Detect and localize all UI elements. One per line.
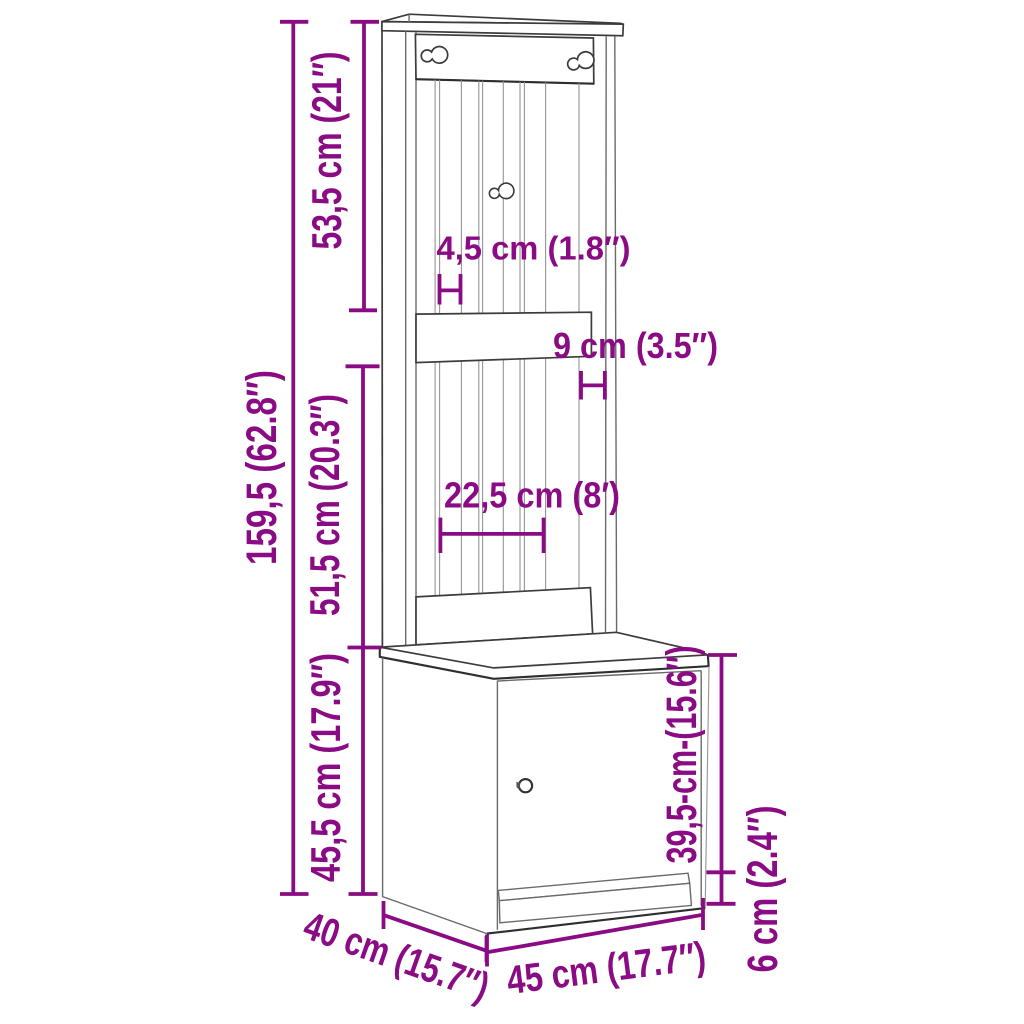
svg-text:45,5 cm (17.9″): 45,5 cm (17.9″)	[302, 653, 349, 882]
svg-text:6 cm (2.4″): 6 cm (2.4″)	[739, 806, 787, 973]
svg-text:159,5 (62.8″): 159,5 (62.8″)	[238, 370, 286, 565]
svg-text:53,5 cm (21″): 53,5 cm (21″)	[303, 52, 350, 250]
svg-text:4,5 cm (1.8″): 4,5 cm (1.8″)	[437, 230, 631, 267]
svg-text:51,5 cm (20.3″): 51,5 cm (20.3″)	[301, 394, 348, 616]
svg-text:22,5 cm (8′): 22,5 cm (8′)	[444, 475, 620, 516]
svg-text:39,5-cm-(15.6″): 39,5-cm-(15.6″)	[658, 646, 706, 864]
svg-text:9 cm (3.5″): 9 cm (3.5″)	[553, 325, 718, 366]
